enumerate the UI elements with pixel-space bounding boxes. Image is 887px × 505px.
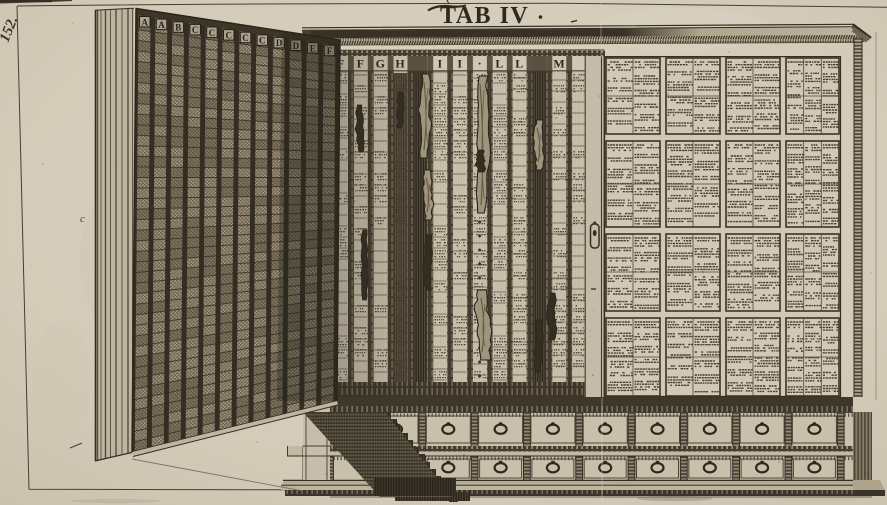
svg-text:c: c xyxy=(80,213,85,225)
svg-text:A: A xyxy=(141,17,148,27)
svg-text:M: M xyxy=(553,57,564,71)
svg-text:I: I xyxy=(457,57,462,71)
svg-text:C: C xyxy=(259,36,266,46)
svg-text:C: C xyxy=(209,28,216,38)
svg-text:C: C xyxy=(242,33,249,43)
svg-text:L: L xyxy=(515,57,523,71)
svg-text:I: I xyxy=(437,57,442,71)
svg-text:C: C xyxy=(192,25,199,35)
svg-text:·: · xyxy=(478,57,482,71)
svg-text:L: L xyxy=(495,57,503,71)
svg-text:C: C xyxy=(225,30,232,40)
svg-text:B: B xyxy=(175,23,181,33)
svg-text:A: A xyxy=(158,20,165,30)
